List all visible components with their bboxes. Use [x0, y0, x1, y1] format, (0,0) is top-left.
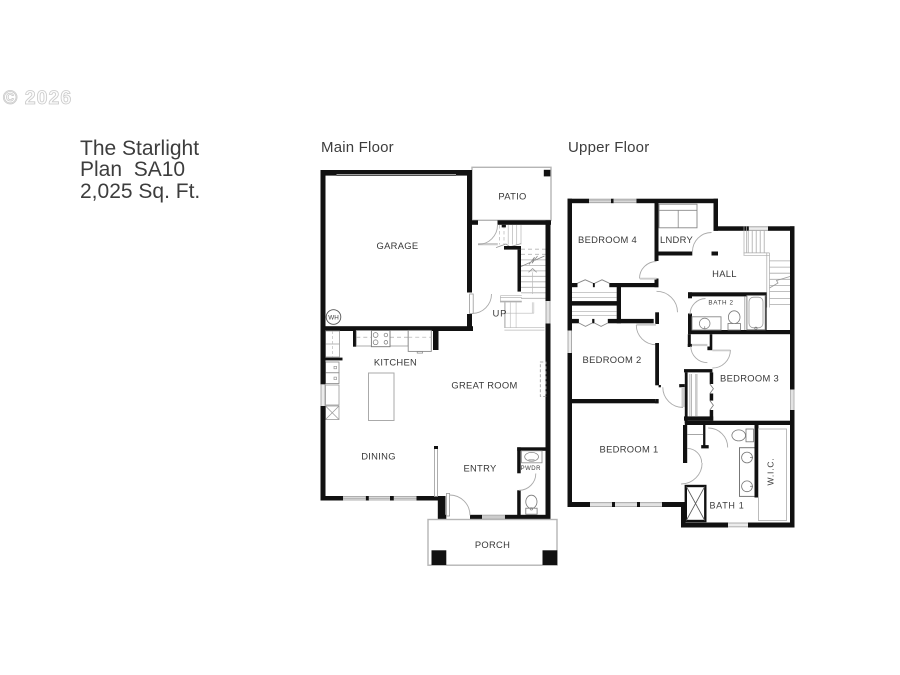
svg-text:WH: WH — [328, 314, 339, 321]
svg-text:Main Floor: Main Floor — [321, 139, 394, 156]
svg-text:HALL: HALL — [712, 268, 737, 279]
svg-text:Upper Floor: Upper Floor — [568, 139, 649, 156]
svg-text:PWDR: PWDR — [521, 466, 541, 472]
svg-text:BEDROOM 2: BEDROOM 2 — [583, 354, 642, 365]
svg-text:BATH 1: BATH 1 — [709, 500, 744, 510]
svg-text:GREAT ROOM: GREAT ROOM — [451, 380, 517, 391]
svg-text:GARAGE: GARAGE — [377, 240, 419, 251]
svg-text:BEDROOM 1: BEDROOM 1 — [600, 444, 659, 455]
svg-text:2,025 Sq. Ft.: 2,025 Sq. Ft. — [80, 180, 200, 203]
svg-text:PORCH: PORCH — [475, 539, 510, 550]
svg-text:DINING: DINING — [361, 451, 396, 462]
svg-text:BEDROOM 3: BEDROOM 3 — [720, 373, 779, 384]
svg-text:UP: UP — [493, 309, 508, 320]
svg-text:PATIO: PATIO — [498, 191, 526, 202]
svg-text:BATH 2: BATH 2 — [708, 300, 733, 307]
svg-text:The Starlight: The Starlight — [80, 137, 199, 160]
svg-text:KITCHEN: KITCHEN — [374, 357, 417, 368]
svg-text:© 2026: © 2026 — [3, 87, 72, 109]
svg-text:BEDROOM 4: BEDROOM 4 — [578, 234, 637, 245]
svg-text:Plan SA10: Plan SA10 — [80, 158, 185, 181]
svg-text:ENTRY: ENTRY — [463, 463, 497, 474]
svg-text:W.I.C.: W.I.C. — [766, 458, 776, 486]
svg-text:LNDRY: LNDRY — [660, 234, 694, 245]
